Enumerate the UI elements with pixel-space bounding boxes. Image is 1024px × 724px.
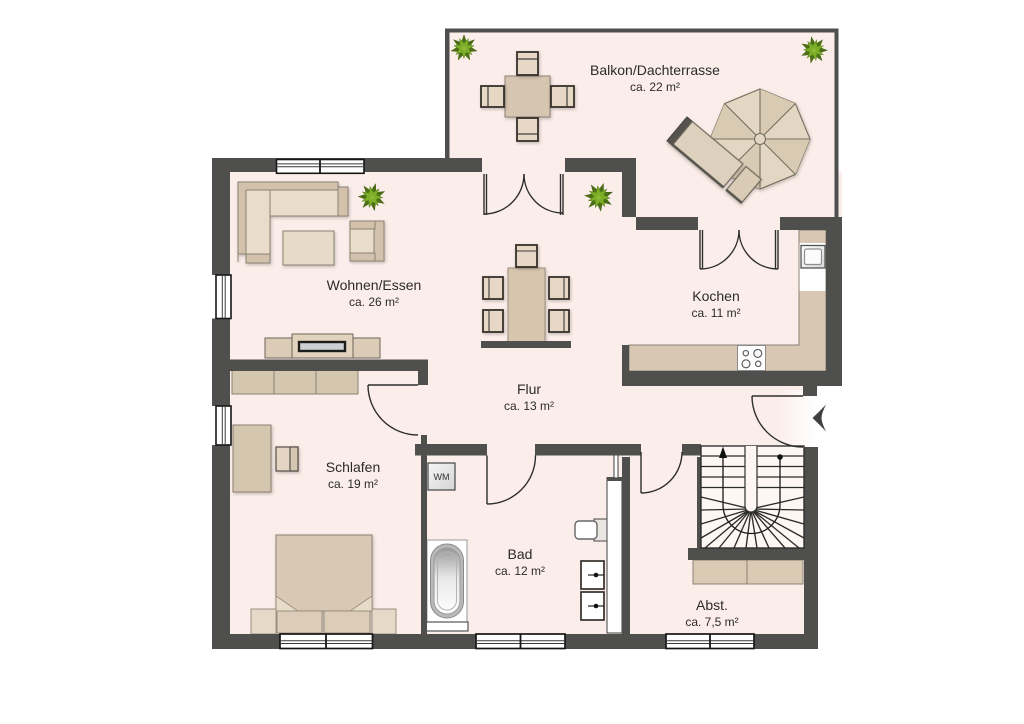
svg-text:Bad: Bad (508, 546, 533, 562)
svg-text:Wohnen/Essen: Wohnen/Essen (327, 277, 422, 293)
svg-text:ca. 11 m²: ca. 11 m² (691, 306, 740, 320)
svg-text:Schlafen: Schlafen (326, 459, 380, 475)
svg-text:Kochen: Kochen (692, 288, 739, 304)
svg-text:ca. 12 m²: ca. 12 m² (495, 564, 545, 578)
svg-text:Flur: Flur (517, 381, 541, 397)
svg-text:ca. 22 m²: ca. 22 m² (630, 80, 680, 94)
svg-text:Balkon/Dachterrasse: Balkon/Dachterrasse (590, 62, 720, 78)
svg-text:ca. 19 m²: ca. 19 m² (328, 477, 378, 491)
svg-text:ca. 13 m²: ca. 13 m² (504, 399, 554, 413)
svg-text:Abst.: Abst. (696, 597, 728, 613)
svg-text:ca. 7,5 m²: ca. 7,5 m² (685, 615, 738, 629)
svg-text:ca. 26 m²: ca. 26 m² (349, 295, 399, 309)
svg-text:WM: WM (434, 472, 450, 482)
